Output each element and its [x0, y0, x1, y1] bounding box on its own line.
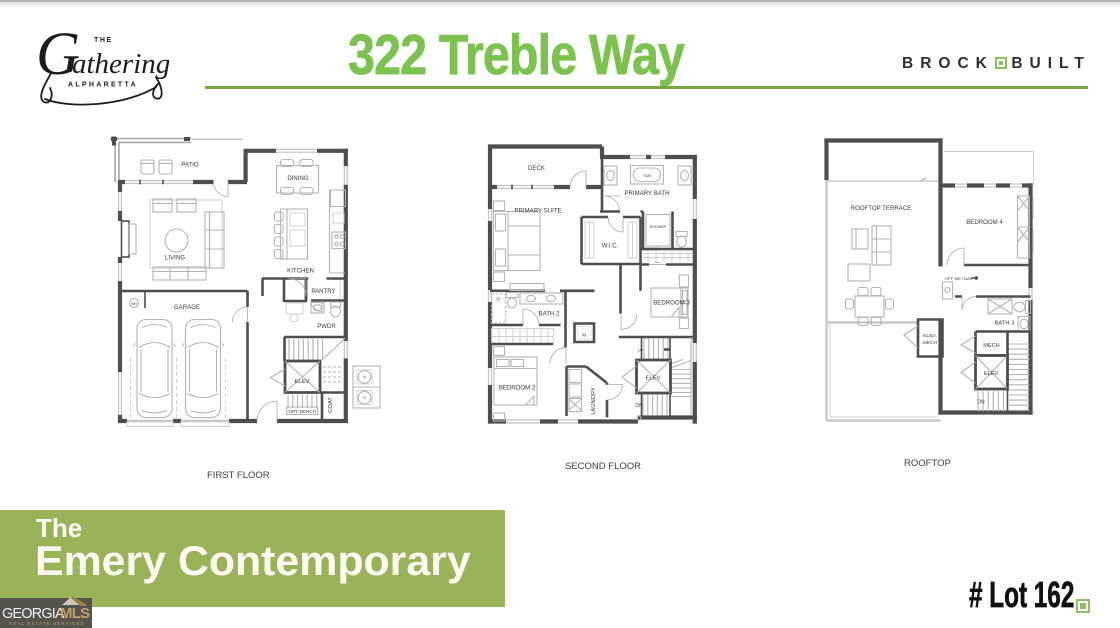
svg-text:PANTRY: PANTRY: [311, 288, 335, 295]
svg-text:GARAGE: GARAGE: [174, 304, 200, 311]
svg-text:UP: UP: [638, 349, 644, 353]
svg-text:MECH: MECH: [983, 343, 999, 349]
svg-text:M: M: [582, 333, 586, 338]
svg-text:ELEV.: ELEV.: [295, 379, 311, 385]
svg-text:BATH 2: BATH 2: [539, 311, 560, 318]
svg-text:BEDROOM 4: BEDROOM 4: [966, 219, 1003, 226]
svg-text:ELEV.: ELEV.: [646, 376, 662, 382]
svg-text:COAT: COAT: [328, 397, 334, 413]
svg-text:DN: DN: [635, 403, 643, 409]
svg-text:W.I.C.: W.I.C.: [602, 243, 619, 250]
svg-text:OPT. WET BAR: OPT. WET BAR: [945, 276, 973, 281]
svg-text:DN: DN: [977, 400, 985, 406]
svg-text:BEDROOM 2: BEDROOM 2: [499, 385, 536, 392]
svg-text:ROOFTOP TERRACE: ROOFTOP TERRACE: [851, 205, 912, 212]
svg-text:WH: WH: [131, 302, 137, 306]
svg-text:ELEV.: ELEV.: [923, 333, 936, 339]
svg-text:LIVING: LIVING: [165, 255, 185, 262]
svg-text:PATIO: PATIO: [181, 162, 199, 169]
svg-text:KITCHEN: KITCHEN: [287, 268, 314, 275]
svg-text:TUB: TUB: [643, 173, 651, 178]
svg-text:OPT. BENCH: OPT. BENCH: [288, 409, 316, 414]
svg-text:PRIMARY BATH: PRIMARY BATH: [624, 190, 669, 197]
svg-text:PWDR: PWDR: [317, 323, 336, 330]
svg-text:ELEV.: ELEV.: [984, 371, 1000, 377]
svg-text:MECH: MECH: [923, 340, 938, 346]
svg-text:PRIMARY SUITE: PRIMARY SUITE: [514, 208, 561, 215]
svg-text:BEDROOM 3: BEDROOM 3: [653, 300, 690, 307]
svg-text:SHOWER: SHOWER: [650, 225, 667, 229]
svg-text:LAUNDRY: LAUNDRY: [591, 387, 597, 415]
svg-text:DINING: DINING: [287, 175, 309, 182]
svg-text:BATH 3: BATH 3: [995, 321, 1015, 327]
svg-text:DECK: DECK: [528, 165, 545, 172]
